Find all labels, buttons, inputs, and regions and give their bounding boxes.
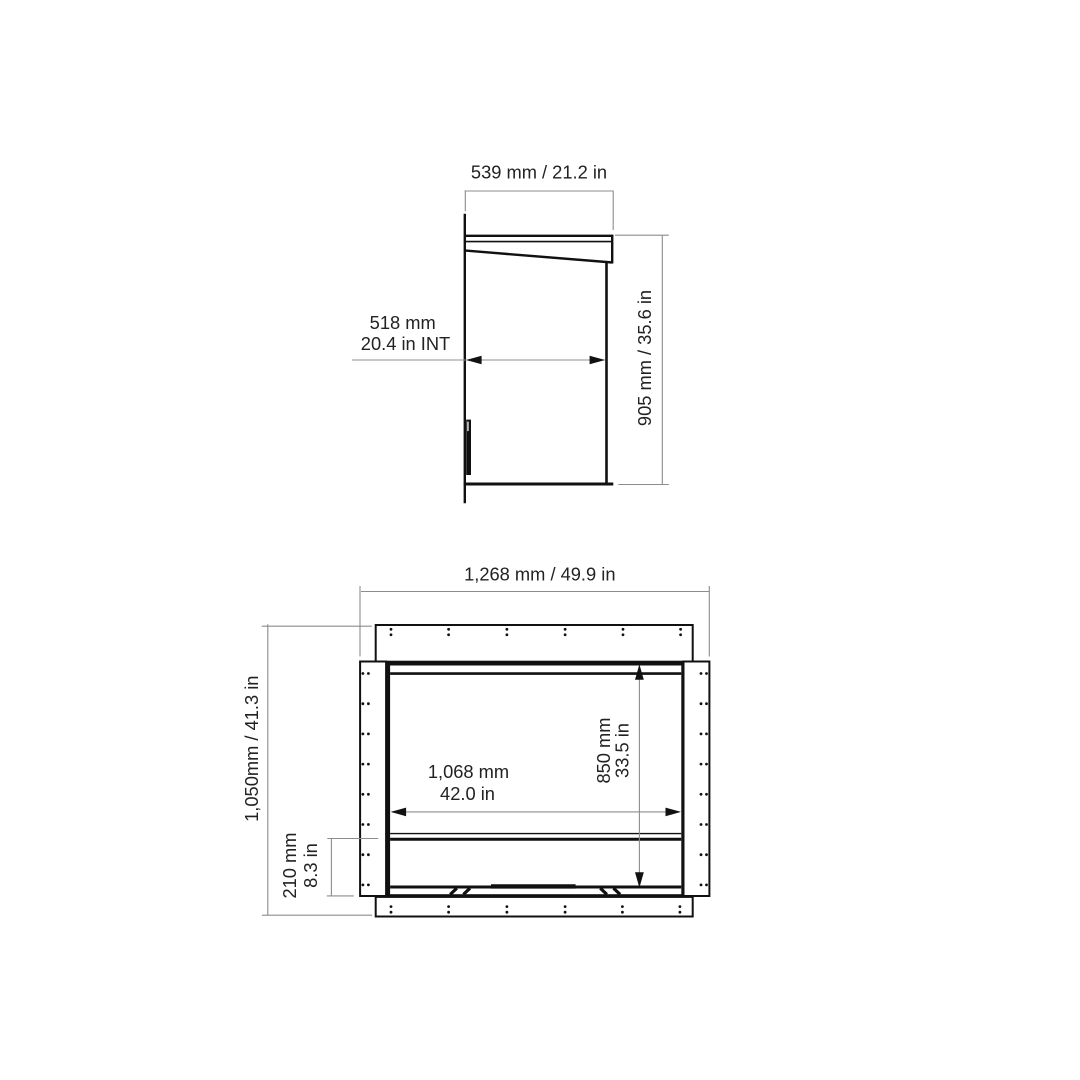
svg-text:8.3 in: 8.3 in [300,843,321,888]
svg-text:210 mm: 210 mm [279,832,300,898]
svg-text:20.4 in INT: 20.4 in INT [361,333,450,354]
svg-text:1,050mm / 41.3 in: 1,050mm / 41.3 in [241,676,262,822]
svg-text:33.5 in: 33.5 in [612,723,633,778]
svg-text:539 mm / 21.2 in: 539 mm / 21.2 in [471,162,607,183]
svg-text:1,268 mm / 49.9 in: 1,268 mm / 49.9 in [464,564,615,585]
svg-text:518 mm: 518 mm [370,312,436,333]
svg-text:1,068 mm: 1,068 mm [428,761,509,782]
svg-text:905 mm / 35.6 in: 905 mm / 35.6 in [634,290,655,426]
svg-text:42.0 in: 42.0 in [440,783,495,804]
